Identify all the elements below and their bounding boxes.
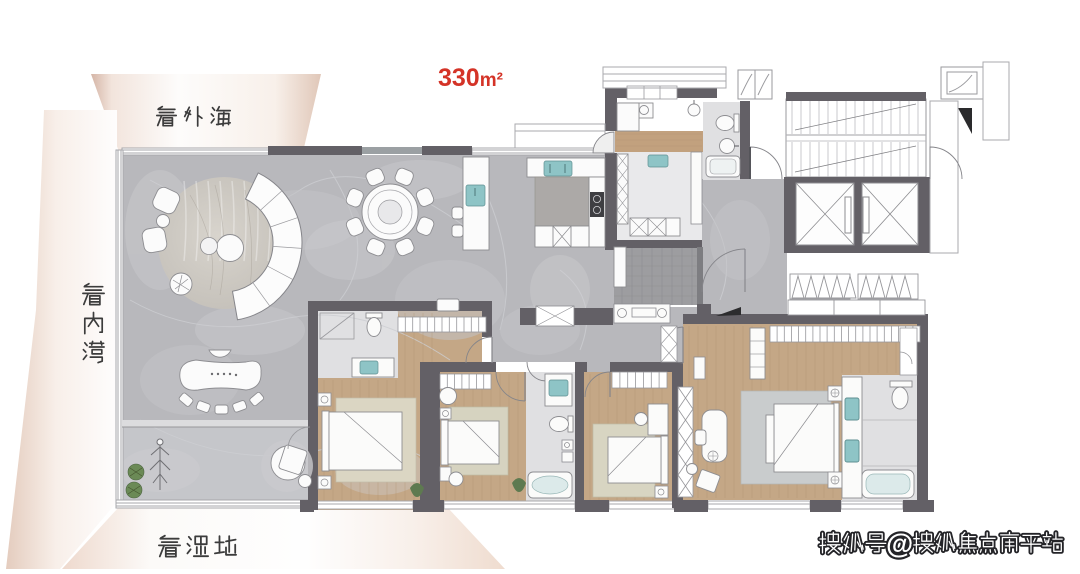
svg-text:330m²: 330m² [438,64,503,92]
svg-text:@: @ [886,528,913,559]
